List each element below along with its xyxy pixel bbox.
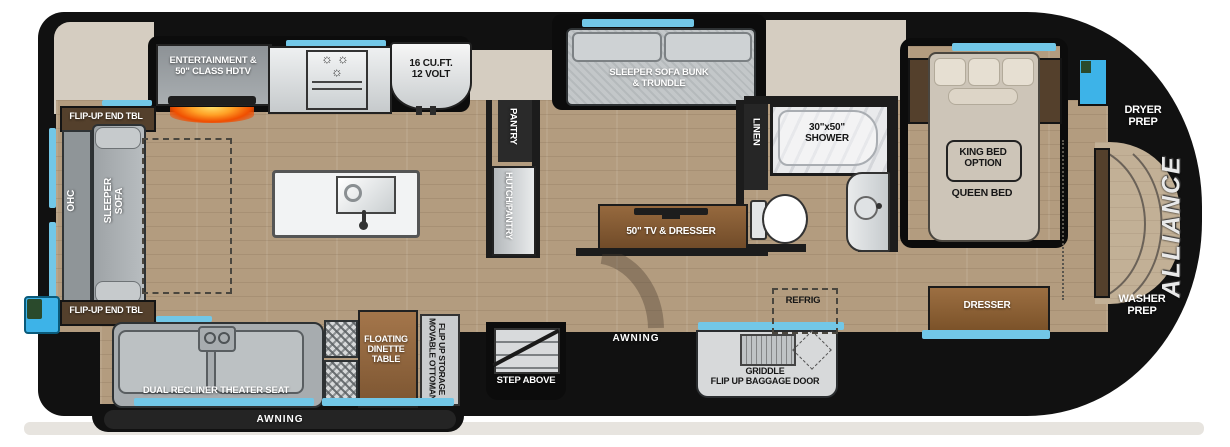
living-slide-window-left bbox=[134, 398, 314, 406]
living-slide-window-right bbox=[322, 398, 454, 406]
queen-bed-label: QUEEN BED bbox=[930, 188, 1034, 200]
roof-pocket-bath bbox=[766, 20, 906, 102]
theater-seat-label: DUAL RECLINER THEATER SEAT bbox=[112, 386, 320, 397]
sleeper-sofa-label: SLEEPER SOFA bbox=[103, 178, 125, 223]
sofa-armrest-top bbox=[95, 127, 141, 149]
ohc-label: OHC bbox=[66, 190, 77, 212]
fireplace-icon bbox=[170, 107, 254, 123]
cupholder-right bbox=[218, 332, 230, 344]
bedroom-slide-travel-line bbox=[1062, 140, 1064, 300]
bunk-cushion-right bbox=[664, 32, 752, 62]
bedroom-bottom-window bbox=[922, 330, 1050, 339]
ottoman-top bbox=[324, 320, 358, 358]
vanity-faucet-icon bbox=[876, 203, 882, 209]
vanity-sink-icon bbox=[854, 196, 878, 220]
bunk-window bbox=[582, 19, 694, 27]
pillow-right bbox=[1002, 58, 1034, 86]
pillow-center bbox=[968, 58, 1000, 86]
slide-travel-dashed-outline bbox=[142, 138, 232, 294]
bunk-cushion-left bbox=[572, 32, 662, 62]
burner-icon-single: ☼ bbox=[308, 65, 366, 78]
rear-accessory-detail bbox=[27, 299, 42, 319]
island-faucet-knob bbox=[359, 221, 368, 230]
corner-tv-detail bbox=[1081, 61, 1091, 73]
bath-top-wall bbox=[744, 96, 896, 104]
pillow-left bbox=[934, 58, 966, 86]
bedroom-dresser-label: DRESSER bbox=[928, 300, 1046, 311]
dinette-label: FLOATING DINETTE TABLE bbox=[356, 334, 416, 364]
rear-window-upper bbox=[49, 128, 56, 208]
toilet-bowl bbox=[762, 194, 808, 244]
linen-closet bbox=[744, 104, 768, 190]
ohc-cabinet bbox=[62, 130, 92, 306]
tv-icon bbox=[168, 96, 256, 105]
bed-bolster bbox=[948, 88, 1018, 105]
entertainment-label: ENTERTAINMENT & 50" CLASS HDTV bbox=[158, 56, 268, 77]
ottoman-bottom bbox=[324, 360, 358, 402]
pantry-label: PANTRY bbox=[507, 108, 518, 145]
refrig-label: REFRIG bbox=[772, 296, 834, 307]
cupholder-left bbox=[204, 332, 216, 344]
sink-drain-icon bbox=[344, 184, 362, 202]
movable-ottoman-label: MOVABLE OTTOMAN FLIP UP STORAGE bbox=[427, 318, 446, 401]
tv-dresser-tv-icon bbox=[634, 208, 708, 215]
nightstand-right bbox=[1038, 58, 1062, 124]
shower-label: 30"x50" SHOWER bbox=[772, 122, 882, 144]
griddle-icon bbox=[740, 334, 796, 366]
oven-lines bbox=[312, 81, 362, 90]
entry-door-arc bbox=[592, 254, 664, 332]
flip-up-end-table-bottom-label: FLIP-UP END TBL bbox=[58, 305, 154, 315]
brand-text: ALLIANCE bbox=[1158, 155, 1187, 297]
stove-icon: ☼☼ ☼ bbox=[306, 50, 368, 110]
bedroom-window bbox=[952, 43, 1056, 51]
griddle-label: GRIDDLE FLIP UP BAGGAGE DOOR bbox=[698, 366, 832, 386]
hutch-pantry-label: HUTCH/PANTRY bbox=[504, 172, 514, 240]
floorplan-canvas: ENTERTAINMENT & 50" CLASS HDTV ☼☼ ☼ 16 C… bbox=[0, 0, 1230, 447]
front-wardrobe-panel bbox=[1094, 148, 1110, 298]
refrigerator-label: 16 CU.FT. 12 VOLT bbox=[392, 58, 470, 80]
king-bed-option-label: KING BED OPTION bbox=[946, 147, 1020, 169]
flip-up-end-table-top-label: FLIP-UP END TBL bbox=[58, 111, 154, 121]
tv-dresser-tv-stand bbox=[662, 215, 680, 219]
fridge-foot-left bbox=[416, 106, 422, 115]
step-above-label: STEP ABOVE bbox=[486, 376, 566, 387]
bunk-label: SLEEPER SOFA BUNK & TRUNDLE bbox=[566, 68, 752, 89]
roof-pocket-mid bbox=[462, 50, 557, 106]
rear-window-lower bbox=[49, 222, 56, 302]
brand-wordmark: ALLIANCE bbox=[1148, 128, 1196, 324]
awning-mid-label: AWNING bbox=[588, 333, 684, 344]
tv-dresser-label: 50" TV & DRESSER bbox=[598, 226, 744, 237]
dryer-prep-label: DRYER PREP bbox=[1108, 104, 1178, 129]
awning-left-label: AWNING bbox=[104, 414, 456, 425]
linen-label: LINEN bbox=[750, 118, 761, 146]
fridge-foot-right bbox=[430, 106, 436, 115]
